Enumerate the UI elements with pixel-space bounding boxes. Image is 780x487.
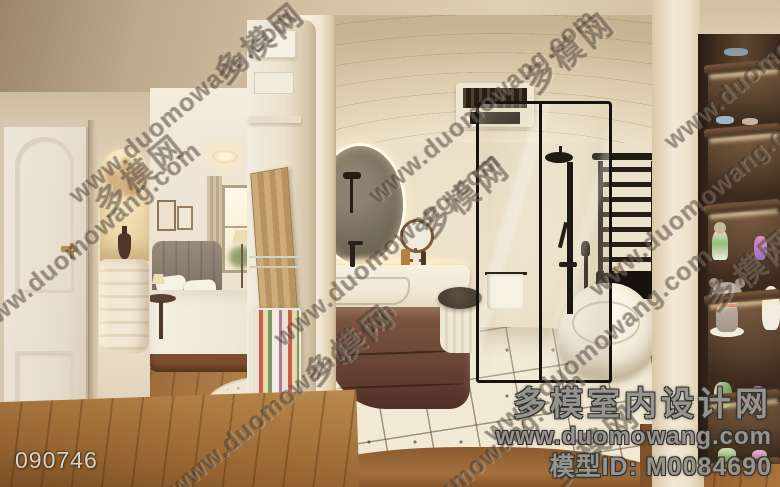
brand-model-id: 模型ID: M0084690 — [496, 453, 772, 481]
storage-box — [254, 72, 294, 94]
brand-site-name: 多模室内设计网 — [496, 386, 772, 423]
toiletry-bottle — [401, 249, 410, 266]
brand-block: 多模室内设计网 www.duomowang.com 模型ID: M0084690 — [496, 386, 772, 481]
nightstand-leg — [159, 301, 163, 339]
door-handle — [61, 246, 78, 251]
leaning-boards — [250, 167, 298, 315]
storage-box — [252, 30, 296, 58]
glass-reflection — [479, 104, 609, 380]
vase — [118, 233, 131, 259]
shower-frame-mullion — [539, 104, 542, 380]
vanity-faucet — [350, 241, 355, 267]
shower-valve — [559, 262, 577, 267]
niche-pedestal — [99, 259, 149, 353]
door-shadow — [88, 120, 96, 438]
floor-lamp-stem — [241, 244, 243, 288]
photo-id: 090746 — [15, 447, 98, 474]
toiletry-bottle — [421, 251, 426, 266]
hanging-towel — [487, 274, 523, 310]
figurine-pink — [754, 236, 767, 260]
table-lamp — [152, 274, 165, 284]
shelf-collectible — [716, 116, 734, 124]
wall-art-frame — [177, 206, 193, 230]
shower-arm — [559, 146, 562, 156]
shower-enclosure — [476, 101, 612, 383]
brand-site-url: www.duomowang.com — [496, 424, 772, 451]
door-arch-molding — [15, 137, 74, 293]
entry-door — [4, 127, 89, 433]
shelf-collectible — [724, 48, 748, 56]
divider-shelf — [247, 20, 316, 440]
panorama-screenshot: www.duomowang.com www.duomowang.com www.… — [0, 0, 780, 487]
figurine-astronaut — [712, 230, 728, 260]
wall-niche — [100, 149, 149, 261]
shelf-ledge — [249, 116, 301, 123]
wall-art-frame — [157, 200, 176, 231]
shelf-rail — [249, 256, 303, 258]
makeup-mirror — [400, 219, 434, 253]
shower-column — [567, 162, 573, 314]
bedroom-ceiling-light — [212, 150, 238, 163]
